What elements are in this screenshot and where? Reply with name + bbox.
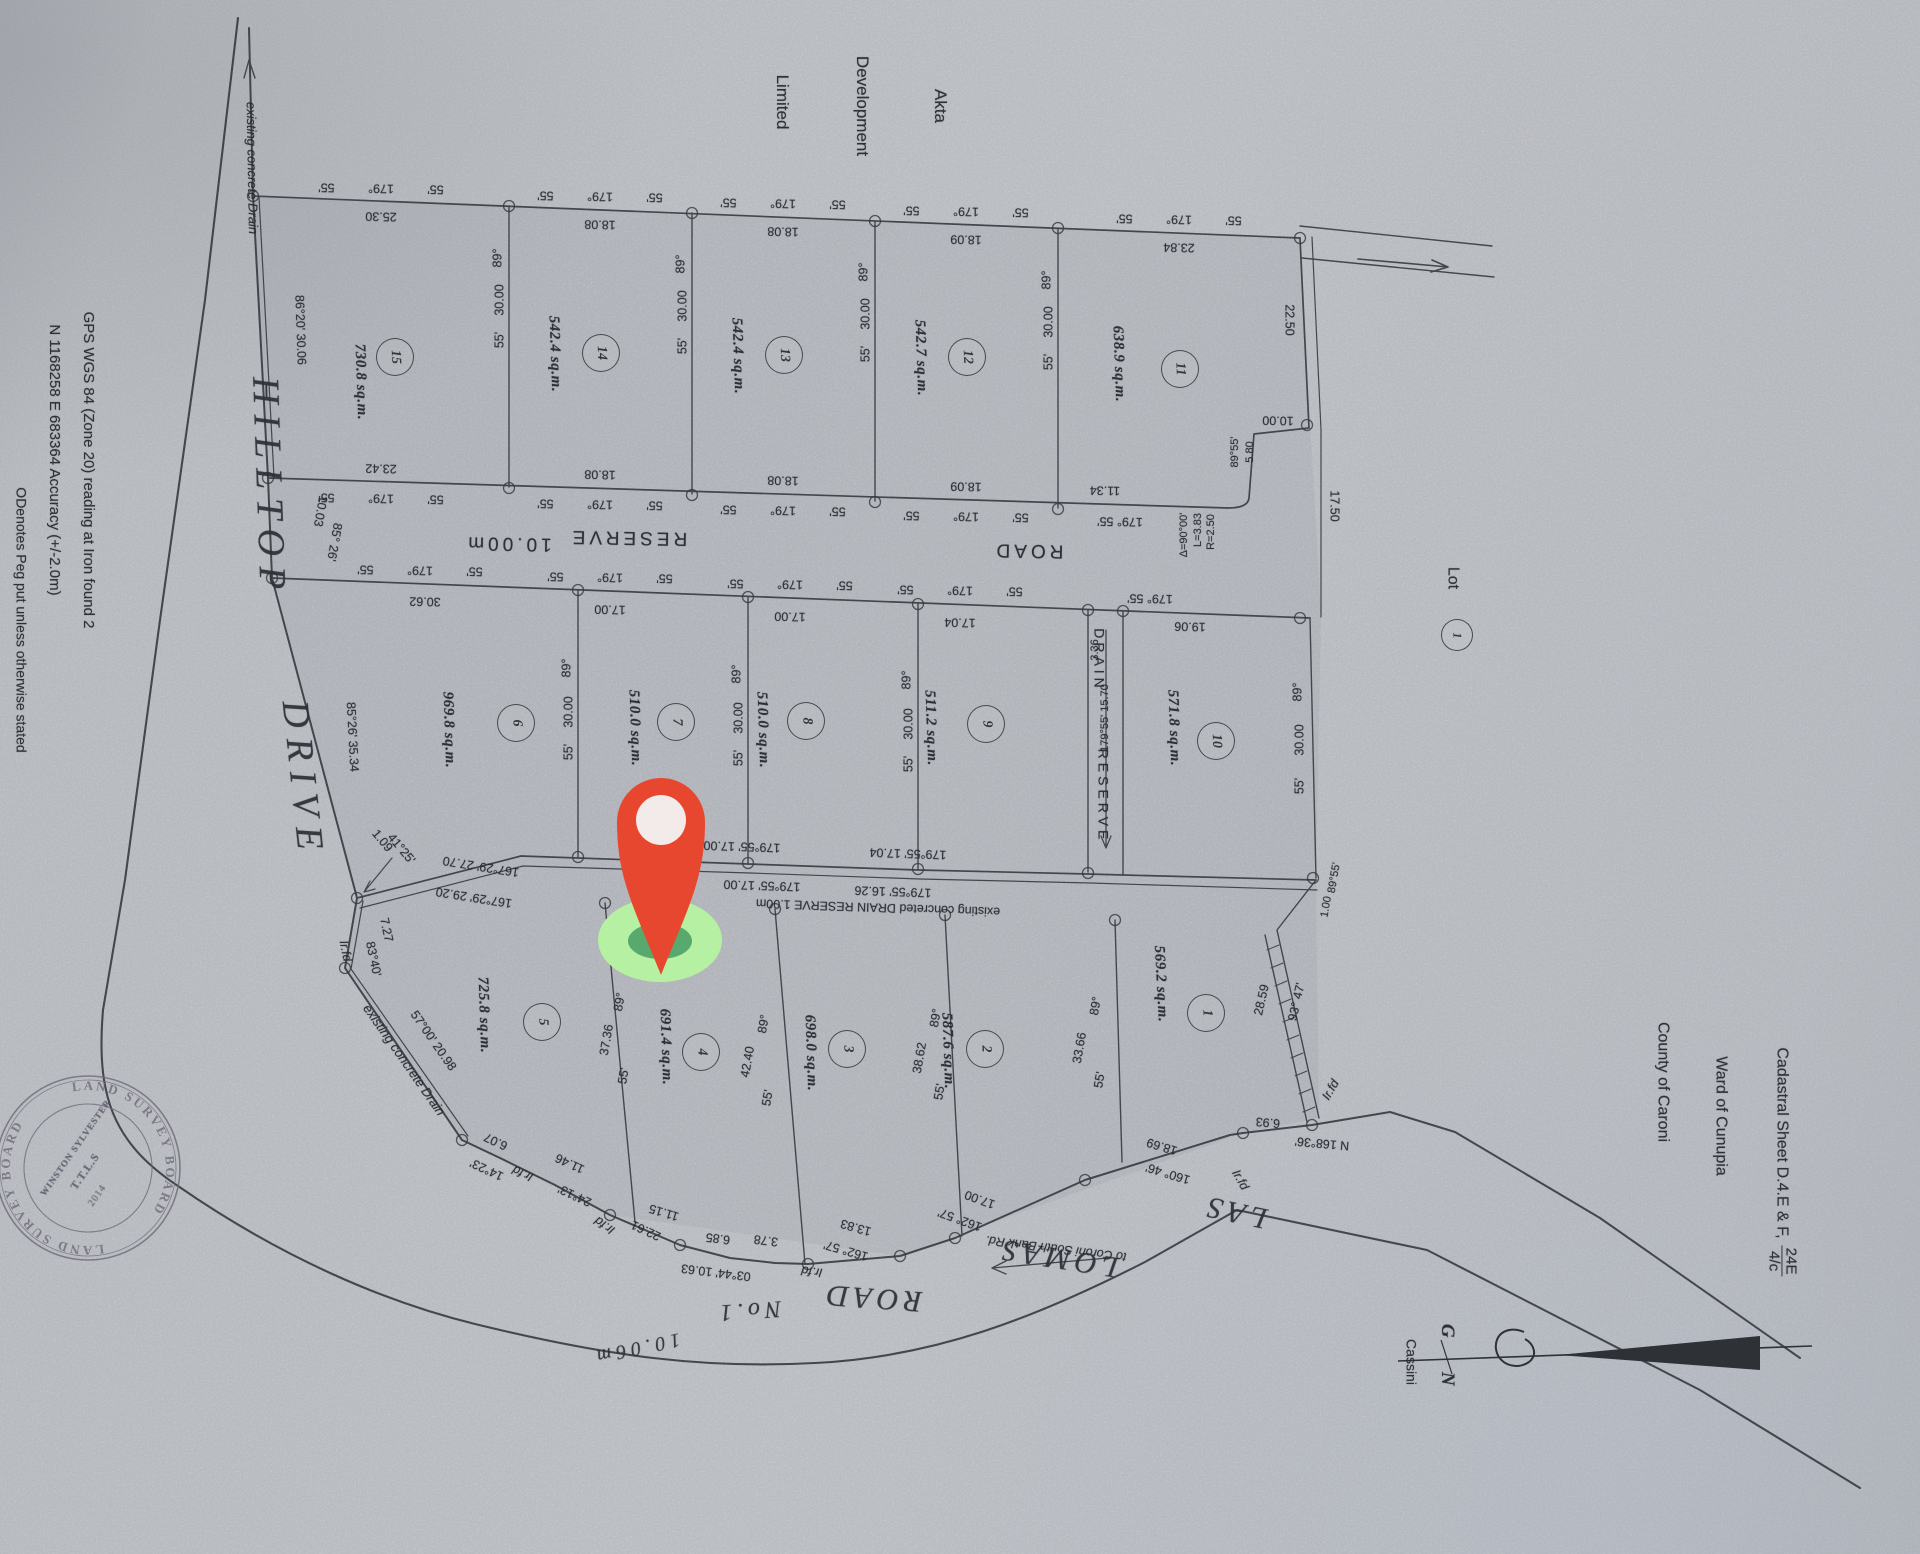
dimension-label: 55'	[493, 332, 506, 348]
dimension-label: 17.50	[1327, 490, 1340, 521]
lot-number-marker: 7	[657, 703, 695, 741]
owner-name: Akta	[931, 89, 949, 123]
dimension-label: 55'	[562, 744, 575, 760]
lot-number-marker: 14	[582, 334, 620, 372]
dimension-label: 55' 179° 55'	[897, 582, 1023, 597]
lot-area-label: 569.2 sq.m.	[1150, 945, 1170, 1022]
road-reserve-label: RESERVE	[569, 526, 688, 548]
hilltop-drive-label: HILLTOP	[244, 376, 292, 600]
iron-found-label: Ir.fd	[801, 1263, 824, 1279]
dimension-label: R=2.50	[1206, 514, 1218, 550]
dimension-label: 89°	[900, 671, 913, 690]
dimension-label: 30.00	[493, 284, 506, 315]
dimension-label: 3.36	[1090, 639, 1102, 660]
lot-number-marker: 6	[497, 704, 535, 742]
dimension-label: 55' 179° 55'	[537, 496, 663, 511]
dimension-label: 55' 179° 55'	[357, 562, 483, 577]
coordinates-note: N 1168258 E 683364 Accuracy (+/-2.0m)	[46, 324, 62, 595]
dimension-label: 18.08	[584, 217, 616, 231]
dimension-label: 89°	[491, 249, 504, 268]
dimension-label: 30.62	[409, 594, 441, 608]
dimension-label: 55'	[1092, 1071, 1108, 1089]
dimension-label: 55'	[932, 1083, 948, 1101]
lot-number-marker: 5	[523, 1003, 561, 1041]
lot-area-label: 510.0 sq.m.	[625, 689, 643, 766]
lot-area-label: 725.8 sq.m.	[474, 976, 492, 1053]
dimension-label: 55' 179° 55'	[720, 502, 846, 517]
dimension-label: 85°26' 35.34	[344, 702, 361, 773]
ward-name: Ward of Cunupia	[1712, 1056, 1729, 1175]
dimension-label: 55'	[760, 1089, 776, 1107]
survey-plan-scan: LAND SURVEY BOARD LAND SURVEY BOARD GPS …	[0, 0, 1920, 1554]
dimension-label: 55'	[732, 750, 745, 766]
dimension-label: 89°55'	[1230, 437, 1242, 468]
dimension-label: 55' 179° 55'	[903, 508, 1029, 523]
dimension-label: 22.50	[1282, 304, 1295, 335]
dimension-label: 19.06	[1174, 619, 1206, 633]
dimension-label: 86°20' 30.06	[292, 295, 308, 365]
las-lomas-road-label: No.1	[714, 1295, 782, 1325]
owner-name: Limited	[773, 75, 791, 130]
lot-number-marker: 12	[948, 338, 986, 376]
dimension-label: 89°	[674, 255, 687, 274]
lot-area-label: 542.4 sq.m.	[728, 317, 746, 394]
dimension-label: 11.34	[1090, 483, 1121, 497]
compass-grid-letter: G	[1437, 1324, 1457, 1338]
dimension-label: 25.30	[365, 209, 397, 223]
dimension-label: 55' 179° 55'	[903, 203, 1029, 218]
lot-number-marker: 9	[967, 705, 1005, 743]
dimension-label: 23.42	[365, 461, 397, 475]
dimension-label: 17.04	[944, 615, 976, 629]
compass-projection-label: Cassini	[1404, 1339, 1419, 1385]
dimension-label: L=3.83	[1193, 513, 1205, 547]
dimension-label: 55' 179° 55'	[720, 195, 846, 210]
dimension-label: 30.00	[676, 290, 689, 321]
gps-note: GPS WGS 84 (Zone 20) reading at Iron fou…	[80, 312, 96, 629]
cadastral-sheet-ref: Cadastral Sheet D.4.E & F,24E4/c	[1766, 1047, 1799, 1276]
lot-area-label: 969.8 sq.m.	[439, 691, 457, 768]
dimension-label: 30.00	[1293, 724, 1306, 755]
lot-area-label: 698.0 sq.m.	[801, 1014, 819, 1091]
dimension-label: 30.00	[859, 298, 872, 329]
lot-number-marker: 11	[1161, 350, 1199, 388]
lot-area-label: 510.0 sq.m.	[753, 691, 771, 768]
dimension-label: Δ=90°00'	[1179, 513, 1191, 558]
dimension-label: 55'	[902, 756, 915, 772]
dimension-label: 6.85	[705, 1230, 731, 1246]
dimension-label: 55' 179° 55'	[727, 576, 853, 591]
dimension-label: 18.08	[767, 473, 799, 487]
dimension-label: 179°55' 15.70	[1100, 684, 1112, 752]
dimension-label: 18.08	[584, 467, 616, 481]
dimension-label: 55'	[859, 346, 872, 362]
dimension-label: 6.93	[1255, 1114, 1280, 1129]
lot-number-marker: 10	[1197, 722, 1235, 760]
lot-number-marker: 3	[828, 1030, 866, 1068]
dimension-label: 10.00	[1262, 413, 1294, 427]
dimension-label: 179° 55'	[1127, 591, 1173, 605]
dimension-label: 55' 179° 55'	[318, 490, 444, 505]
peg-legend-note: ODenotes Peg put unless otherwise stated	[14, 487, 29, 752]
dimension-label: 17.00	[774, 609, 806, 623]
dimension-label: 89°	[730, 665, 743, 684]
adjacent-lot-number: 1	[1441, 619, 1473, 651]
road-reserve-label: ROAD	[992, 539, 1063, 560]
dimension-label: 55'	[676, 338, 689, 354]
road-reserve-label: 10.00m	[464, 532, 552, 553]
dimension-label: 55' 179° 55'	[318, 180, 444, 195]
lot-area-label: 511.2 sq.m.	[921, 690, 939, 766]
lot-number-marker: 8	[787, 702, 825, 740]
drain-reserve-label: RESERVE	[1096, 749, 1111, 844]
dimension-label: 3.78	[753, 1232, 779, 1248]
dimension-label: 30.00	[732, 702, 745, 733]
dimension-label: 89°	[560, 659, 573, 678]
lot-area-label: 730.8 sq.m.	[351, 343, 369, 420]
dimension-label: 30.00	[1042, 306, 1055, 337]
dimension-label: 55' 179° 55'	[1116, 211, 1242, 226]
pin-center-dot	[636, 795, 686, 845]
dimension-label: 55' 179° 55'	[547, 569, 673, 584]
dimension-label: 179°55' 16.26	[854, 883, 931, 899]
dimension-label: 18.08	[767, 224, 799, 238]
las-lomas-road-label: ROAD	[821, 1279, 923, 1317]
dimension-label: 179° 55'	[1097, 514, 1143, 528]
lot-area-label: 638.9 sq.m.	[1109, 325, 1127, 402]
dimension-label: 30.00	[562, 696, 575, 727]
dimension-label: 179°55' 17.00	[723, 877, 800, 893]
dimension-label: 55'	[1042, 354, 1055, 370]
dimension-label: 55'	[1293, 778, 1306, 794]
lot-number-marker: 1	[1187, 994, 1225, 1032]
lot-area-label: 542.4 sq.m.	[545, 315, 563, 392]
lot-number-marker: 2	[966, 1030, 1004, 1068]
dimension-label: 30.00	[902, 708, 915, 739]
dimension-label: 23.84	[1163, 240, 1195, 254]
lot-number-marker: 13	[765, 336, 803, 374]
lot-area-label: 571.8 sq.m.	[1164, 689, 1182, 766]
adjacent-lot-label: Lot	[1444, 567, 1461, 589]
dimension-label: 55'	[616, 1067, 632, 1085]
county-name: County of Caroni	[1654, 1022, 1671, 1142]
dimension-label: 89°	[857, 263, 870, 282]
dimension-label: 179°55' 17.00	[703, 838, 780, 854]
dimension-label: 18.09	[950, 479, 982, 493]
lot-area-label: 542.7 sq.m.	[911, 319, 929, 396]
dimension-label: 89°	[1291, 683, 1304, 702]
compass-north-letter: N	[1437, 1372, 1457, 1386]
dimension-label: 179°55' 17.04	[869, 845, 946, 861]
existing-drain-note: existing concrete Drain	[244, 102, 260, 234]
owner-name: Development	[853, 56, 871, 156]
lot-area-label: 691.4 sq.m.	[656, 1008, 674, 1085]
dimension-label: 17.00	[594, 602, 626, 616]
dimension-label: 55' 179° 55'	[537, 188, 663, 203]
lot-number-marker: 15	[376, 338, 414, 376]
dimension-label: 5.80	[1245, 441, 1257, 462]
dimension-label: 89°	[1040, 271, 1053, 290]
lot-number-marker: 4	[682, 1033, 720, 1071]
dimension-label: 18.09	[950, 232, 982, 246]
